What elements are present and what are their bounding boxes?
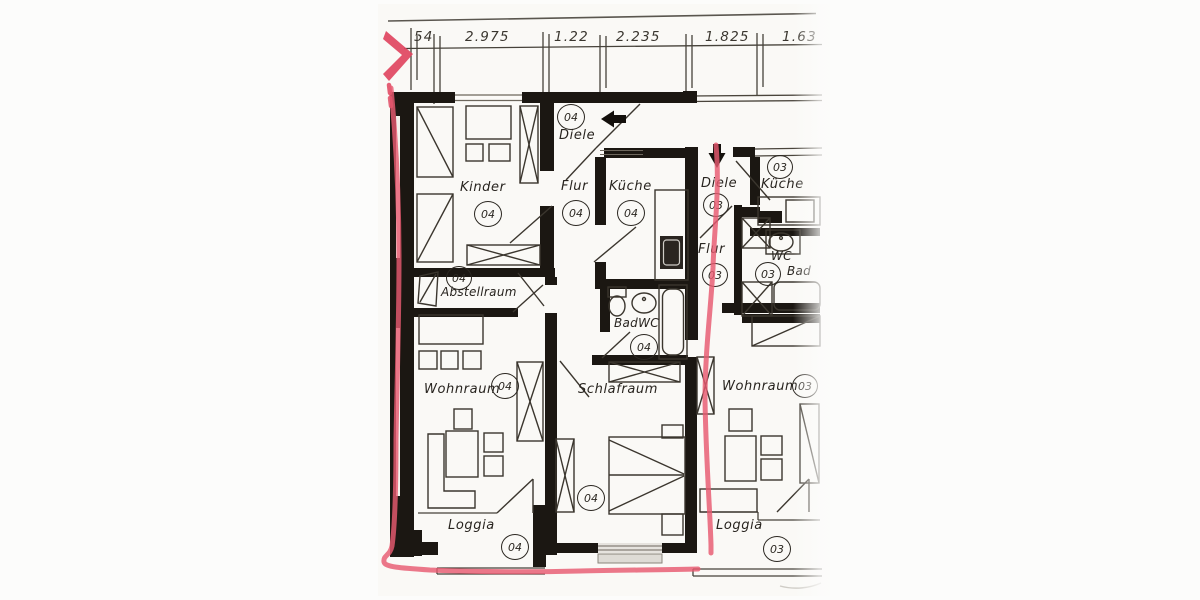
marker-highlight-arrow-icon [383,31,413,106]
floor-plan-scan: 54 2.975 1.22 2.235 1.825 1.63 Kinder Di… [0,0,1200,600]
marker-outline-unit04 [384,88,717,572]
